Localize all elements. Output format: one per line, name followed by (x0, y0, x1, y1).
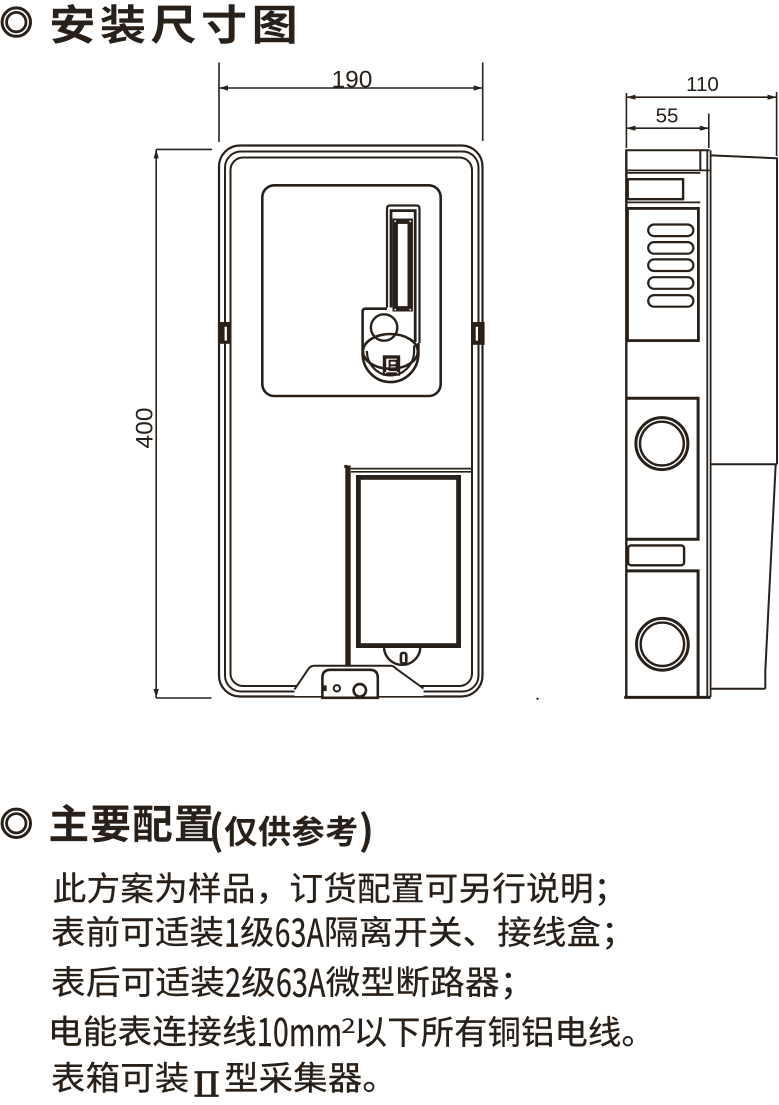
svg-text:400: 400 (132, 408, 159, 449)
svg-text:110: 110 (686, 73, 719, 96)
svg-text:55: 55 (656, 105, 679, 128)
svg-text:190: 190 (332, 67, 373, 94)
